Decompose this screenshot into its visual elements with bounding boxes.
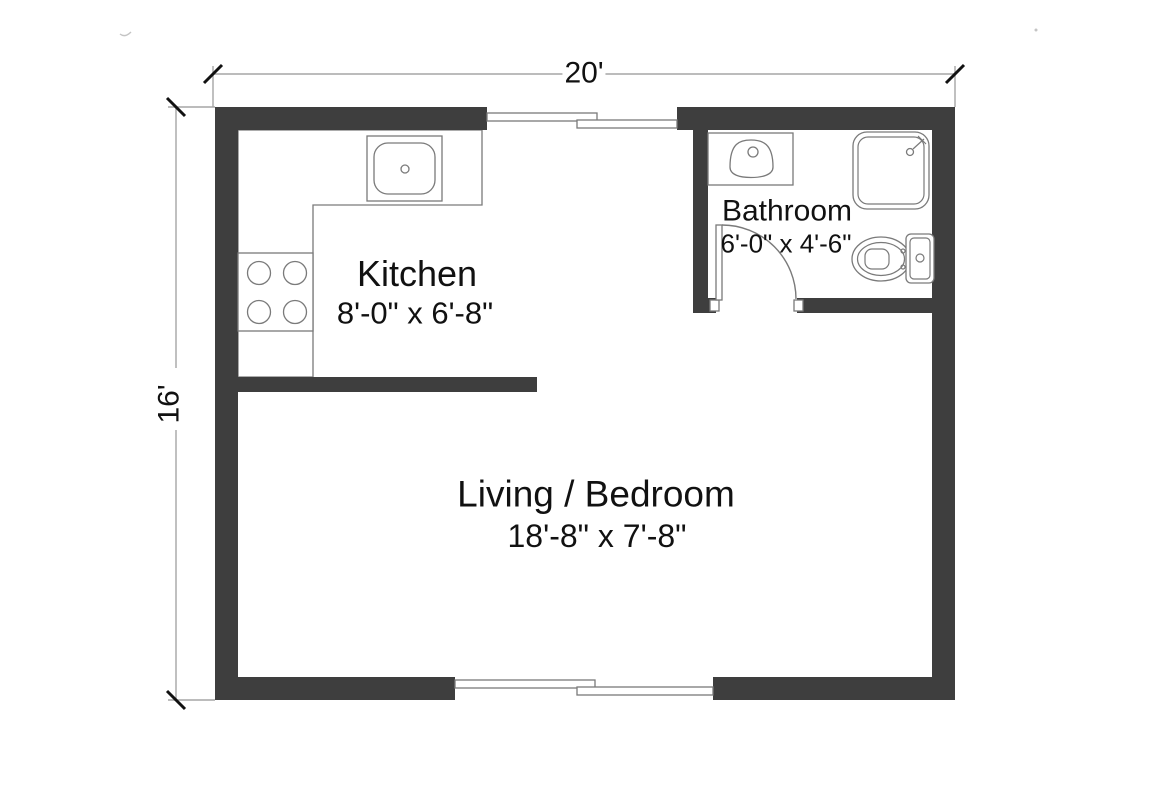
wall-west <box>215 107 238 700</box>
room-dims-living-bedroom: 18'-8" x 7'-8" <box>507 520 686 554</box>
wall-north-right <box>677 107 955 130</box>
stove-burner <box>248 301 271 324</box>
sliding-door-panel <box>577 687 713 695</box>
corner-artifact <box>1035 29 1038 32</box>
sliding-door <box>455 680 713 695</box>
faucet-icon <box>748 147 758 157</box>
door-jamb <box>710 300 719 311</box>
stove-burner <box>248 262 271 285</box>
sliding-window <box>487 113 677 128</box>
wall-kitchen-south <box>215 377 537 392</box>
room-label-living-bedroom: Living / Bedroom <box>457 476 735 515</box>
floor-plan-canvas: 20' 16' Kitchen 8'-0" x 6'-8" Bathroom 6… <box>0 0 1170 795</box>
wall-north-left <box>215 107 487 130</box>
toilet-bowl <box>852 237 910 281</box>
wall-bathroom-west <box>693 130 708 313</box>
wall-east <box>932 107 955 700</box>
shower <box>853 132 929 209</box>
stove <box>238 253 313 331</box>
window-panel <box>577 120 677 128</box>
dimension-label-height: 16' <box>153 382 185 425</box>
dimension-label-width: 20' <box>562 57 605 89</box>
door-jamb <box>794 300 803 311</box>
wall-south-left <box>215 677 455 700</box>
basin-top-view-icon <box>730 140 773 178</box>
corner-artifact <box>120 32 131 36</box>
toilet <box>852 234 934 283</box>
sliding-door-panel <box>455 680 595 688</box>
shower-head-icon <box>907 149 914 156</box>
wall-bathroom-south <box>797 298 934 313</box>
kitchen-sink <box>367 136 442 201</box>
room-dims-kitchen: 8'-0" x 6'-8" <box>337 298 493 331</box>
room-label-bathroom: Bathroom <box>722 195 852 227</box>
room-label-kitchen: Kitchen <box>357 255 477 293</box>
shower-stall <box>853 132 929 209</box>
stove-burner <box>284 301 307 324</box>
sink-drain <box>401 165 409 173</box>
wall-south-right <box>713 677 955 700</box>
bathroom-sink <box>708 133 793 185</box>
room-dims-bathroom: 6'-0" x 4'-6" <box>721 230 852 257</box>
stove-burner <box>284 262 307 285</box>
